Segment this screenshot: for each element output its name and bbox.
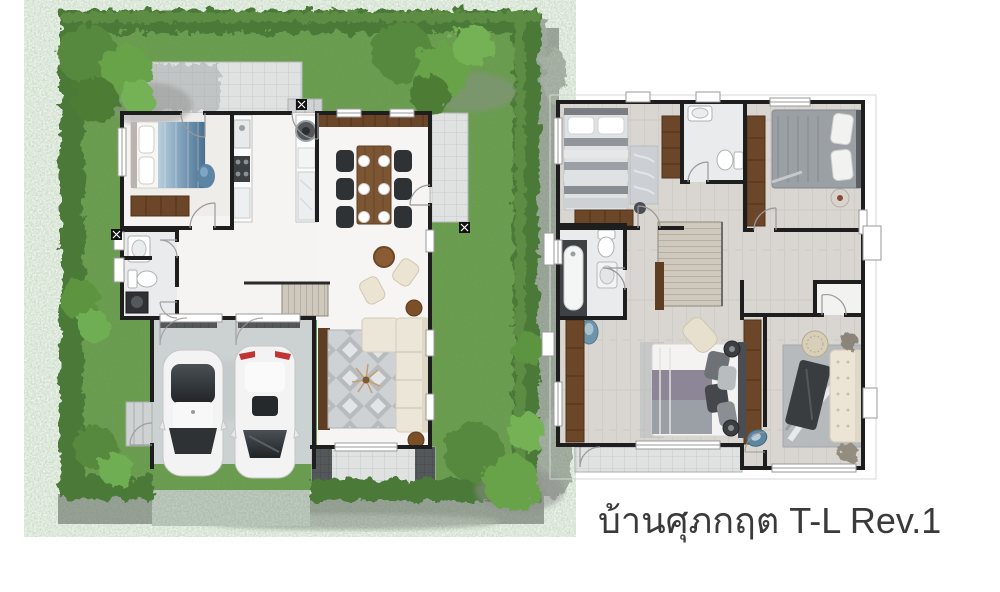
tree (512, 332, 544, 364)
stool (634, 202, 646, 214)
floor-plan-image: บ้านศุภกฤต T-L Rev.1 (0, 0, 1000, 592)
driveway-apron (152, 490, 310, 526)
master-wardrobe-left (566, 320, 584, 442)
car (230, 346, 300, 478)
second-floor-plan (542, 92, 881, 479)
bedroom3-bed (772, 110, 863, 188)
bedroom-bed (131, 122, 205, 188)
plant (838, 443, 858, 463)
rattan-pouf (802, 331, 828, 357)
plant (840, 332, 858, 350)
washing-machine (126, 292, 148, 313)
bedroom3-wardrobe (747, 116, 765, 226)
dining-set (336, 146, 412, 228)
balcony (575, 447, 742, 472)
side-terrace (430, 113, 468, 222)
ground-floor-plan (58, 10, 572, 530)
front-terrace (312, 447, 435, 483)
family-sofa (830, 350, 863, 442)
plan-caption: บ้านศุภกฤต T-L Rev.1 (598, 492, 928, 549)
toilet (128, 270, 157, 288)
hall-wardrobe (662, 116, 682, 178)
bedroom2-bed (564, 108, 628, 210)
stairs-upper (655, 222, 722, 310)
pouf (406, 300, 422, 316)
porch-steps (126, 402, 152, 446)
bedroom-wardrobe (131, 196, 189, 216)
master-wardrobe-right (744, 320, 761, 444)
family-room (783, 331, 863, 463)
kitchen-counter-left (232, 115, 252, 222)
car (159, 350, 227, 476)
